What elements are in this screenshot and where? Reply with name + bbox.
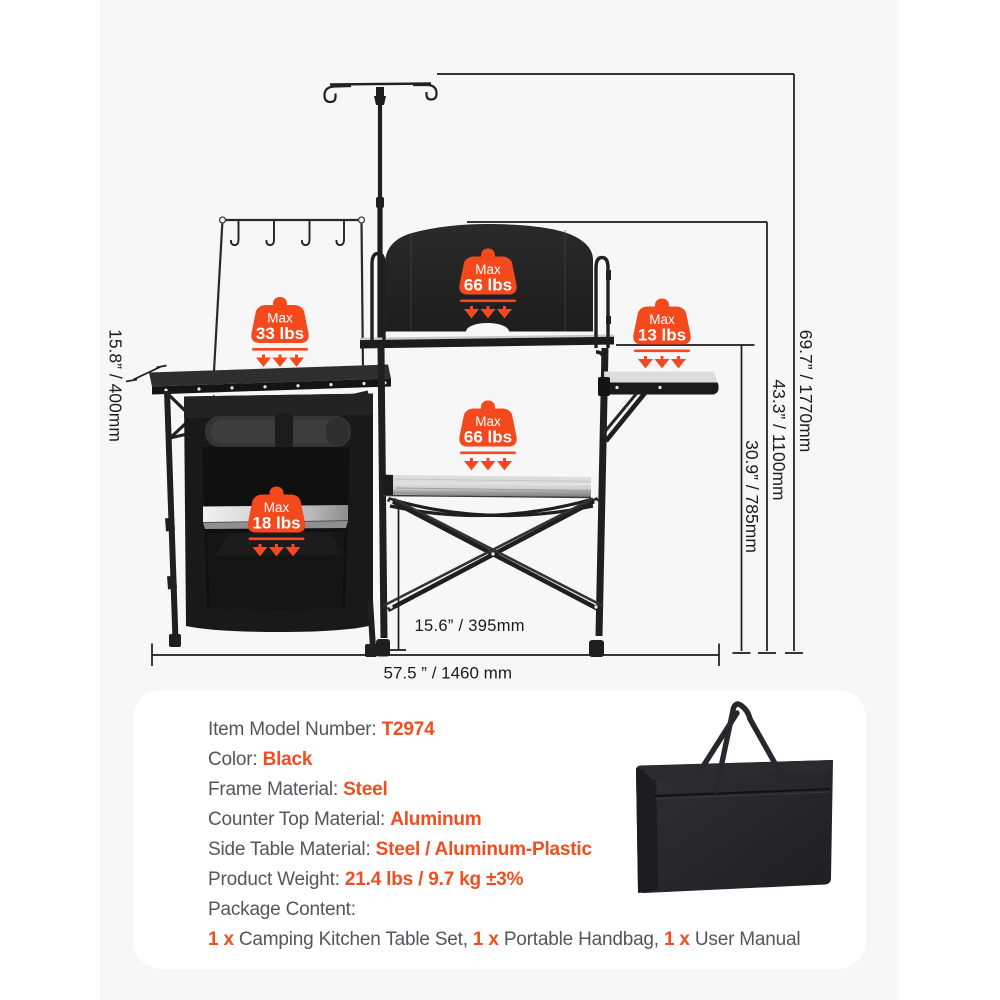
svg-text:30.9” / 785mm: 30.9” / 785mm <box>742 440 762 553</box>
svg-text:66 lbs: 66 lbs <box>464 276 512 295</box>
svg-text:18 lbs: 18 lbs <box>252 514 300 533</box>
svg-text:43.3” / 1100mm: 43.3” / 1100mm <box>769 379 789 500</box>
svg-text:57.5 ” / 1460 mm: 57.5 ” / 1460 mm <box>384 664 513 683</box>
svg-text:15.8” / 400mm: 15.8” / 400mm <box>106 329 126 442</box>
svg-text:69.7” / 1770mm: 69.7” / 1770mm <box>796 330 816 453</box>
svg-text:13 lbs: 13 lbs <box>638 326 686 345</box>
svg-text:66 lbs: 66 lbs <box>464 428 512 447</box>
svg-text:15.6” / 395mm: 15.6” / 395mm <box>415 617 525 635</box>
svg-text:33 lbs: 33 lbs <box>256 324 304 343</box>
